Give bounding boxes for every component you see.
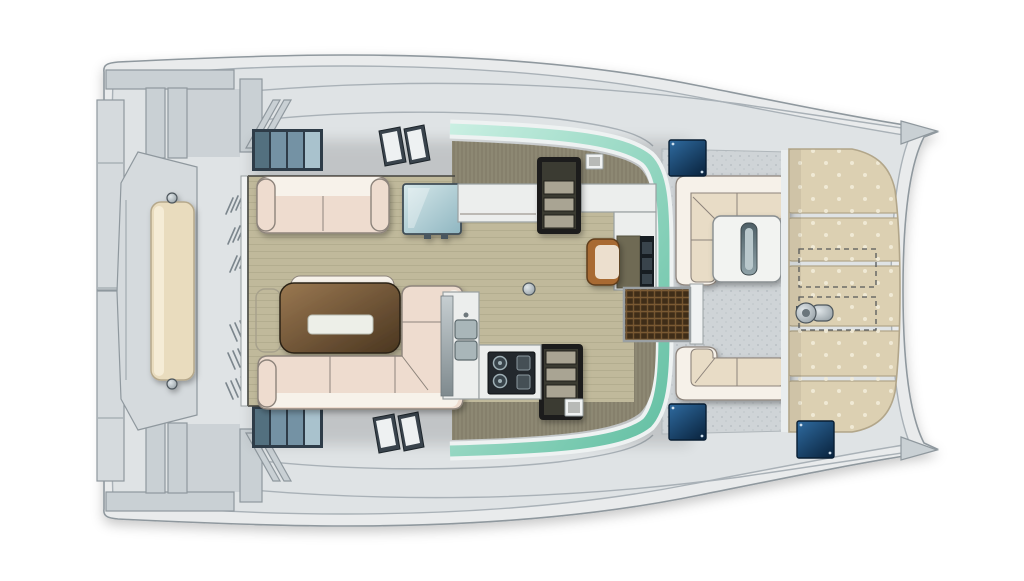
- hull-window-top: [252, 129, 323, 171]
- cabinet-foot: [424, 234, 431, 239]
- burner-grate: [517, 375, 530, 389]
- recess-top: [186, 89, 240, 157]
- davit-pillar-b-bottom: [168, 423, 187, 493]
- fridge-detail: [642, 242, 652, 254]
- winch-center: [802, 309, 810, 317]
- deck-hatch-aft: [797, 421, 834, 458]
- cockpit-table: [713, 216, 781, 282]
- deck-hatch-bottom: [669, 404, 706, 440]
- davit-pillar-a-top: [146, 88, 165, 158]
- cooktop-counter: [479, 345, 541, 399]
- winch: [796, 303, 833, 323]
- desk-olive: [617, 236, 640, 288]
- sofa-back-band: [261, 177, 385, 196]
- deck-hatch-top: [669, 140, 706, 176]
- crossbeam-top: [106, 70, 234, 89]
- glass-cabinet: [403, 184, 461, 239]
- floor-socket: [523, 283, 535, 295]
- doormat-grate: [624, 288, 690, 341]
- sideboard-hatch-bottom: [565, 399, 583, 416]
- sofa-arm-left: [257, 179, 275, 231]
- entry-door-sill: [690, 284, 703, 344]
- foredeck-sunpads: [781, 149, 906, 432]
- crossbeam-bottom: [106, 492, 234, 511]
- dinette-table-inset: [308, 315, 373, 334]
- fridge-detail: [642, 274, 652, 284]
- sink-2: [455, 341, 477, 360]
- hull-window-bottom: [252, 406, 323, 448]
- sink-1: [455, 320, 477, 339]
- cockpit-table-slot-inner: [745, 228, 753, 270]
- sofa-arm-left: [258, 360, 276, 407]
- nav-chair: [587, 239, 619, 285]
- cabinet-foot: [441, 234, 448, 239]
- appliance-strip: [441, 296, 453, 396]
- davit-pillar-b-top: [168, 88, 187, 158]
- counter-right: [581, 184, 656, 212]
- salon-sofa-top: [257, 177, 389, 233]
- burner-grate: [517, 356, 530, 370]
- sofa-band-bottom: [262, 393, 458, 407]
- faucet: [464, 313, 469, 318]
- bench-pin-bottom: [167, 379, 177, 389]
- salon: [241, 129, 703, 451]
- companionway-stairs-top: [537, 157, 581, 234]
- recess-bottom: [186, 424, 240, 492]
- sofa-arm-right: [371, 179, 389, 231]
- fridge-detail: [642, 258, 652, 270]
- bench-pin-top: [167, 193, 177, 203]
- sunpad-shade: [789, 149, 801, 432]
- deck-plan: [0, 0, 1024, 581]
- aft-bench: [151, 193, 194, 389]
- galley-counter: [441, 292, 479, 399]
- forward-wall: [241, 176, 248, 406]
- aft-bench-highlight: [154, 206, 164, 376]
- sideboard-hatch-top: [586, 154, 603, 169]
- sunpad-tufting: [786, 149, 906, 432]
- davit-pillar-a-bottom: [146, 423, 165, 493]
